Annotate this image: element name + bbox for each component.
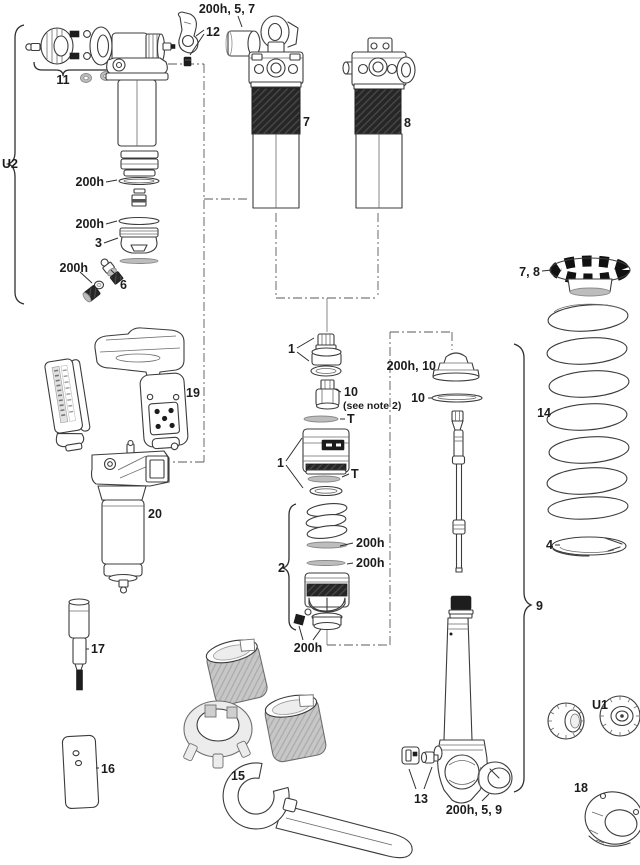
part-14-coil-spring: [546, 302, 630, 521]
part-bumper-200h10: [433, 353, 479, 381]
part-aircan-cap-stack: [121, 151, 158, 176]
callout-200h-c: 200h: [60, 261, 89, 275]
part-19-control-module: [95, 328, 189, 452]
callout-see-note: (see note 2): [343, 400, 401, 412]
part-seal-c-bits: [82, 281, 104, 303]
callout-19: 19: [186, 386, 200, 400]
callout-1-upper: 1: [288, 342, 295, 356]
callout-2: 2: [278, 561, 285, 575]
callout-200h-a: 200h: [76, 175, 105, 189]
part-t-ring-upper: [304, 416, 338, 422]
part-shim-ring: [120, 259, 158, 264]
callout-11: 11: [56, 73, 69, 87]
part-seal-b: [119, 218, 159, 225]
callout-bushing-top: 200h, 5, 7: [199, 2, 255, 16]
callout-10-right: 10: [411, 391, 425, 405]
callout-13: 13: [414, 792, 428, 806]
exploded-parts-diagram: 200h, 5, 7 12 11 U2 200h 200h 3 200h 6 7…: [0, 0, 640, 865]
part-3-piston: [120, 228, 158, 253]
callout-200h-5-9: 200h, 5, 9: [446, 803, 502, 817]
part-bushing-bottom: [478, 762, 512, 794]
callout-200h-10: 200h, 10: [387, 359, 436, 373]
part-valve-bits: [132, 189, 146, 206]
diagram-canvas: 200h, 5, 7 12 11 U2 200h 200h 3 200h 6 7…: [0, 0, 640, 865]
callout-20: 20: [148, 507, 162, 521]
part-10-valve: [316, 380, 339, 409]
part-preload-ring: [550, 258, 630, 296]
brace-9: [514, 344, 531, 792]
part-2-spring-stack: [294, 502, 349, 630]
callout-6: 6: [120, 278, 127, 292]
callout-200h-b: 200h: [76, 217, 105, 231]
part-battery: [44, 357, 93, 452]
part-glide-ring: [310, 487, 342, 496]
part-damper-shaft: [452, 411, 465, 572]
callout-7-8: 7, 8: [519, 265, 540, 279]
callout-8: 8: [404, 116, 411, 130]
callout-1-lower: 1: [277, 456, 284, 470]
part-t-ring-lower: [308, 476, 340, 482]
part-13-hardware: [402, 747, 438, 764]
part-oring-a: [119, 178, 159, 185]
part-12-lever: [178, 12, 198, 66]
callout-10-center: 10: [344, 385, 358, 399]
callout-15: 15: [231, 769, 245, 783]
part-18-mount-can: [580, 787, 640, 850]
callout-3: 3: [95, 236, 102, 250]
callout-17: 17: [91, 642, 105, 656]
part-15-wrench: [223, 763, 412, 858]
part-sleeve-a: [204, 636, 269, 707]
part-17-tool: [69, 599, 89, 690]
callout-18: 18: [574, 781, 588, 795]
part-1-piston-lower: [303, 429, 349, 474]
callout-t-upper: T: [347, 412, 355, 426]
callout-200h-d: 200h: [356, 536, 385, 550]
callout-t-lower: T: [351, 467, 359, 481]
callout-4: 4: [546, 538, 553, 552]
part-16-block: [62, 735, 99, 809]
part-sleeve-b: [263, 691, 328, 763]
part-4-spring-seat: [552, 537, 626, 556]
part-washer-10: [432, 394, 482, 402]
callout-200h-f: 200h: [294, 641, 323, 655]
callout-9: 9: [536, 599, 543, 613]
part-lockring: [183, 701, 252, 768]
callout-16: 16: [101, 762, 115, 776]
construction-lines: [168, 64, 452, 645]
callout-7: 7: [303, 115, 310, 129]
part-1-sealhead-upper: [311, 334, 341, 376]
callout-12: 12: [206, 25, 220, 39]
callout-u1: U1: [592, 698, 608, 712]
part-remote-damper-assembly: [106, 33, 175, 146]
callout-u2: U2: [2, 157, 18, 171]
callout-14: 14: [537, 406, 551, 420]
callout-200h-e: 200h: [356, 556, 385, 570]
